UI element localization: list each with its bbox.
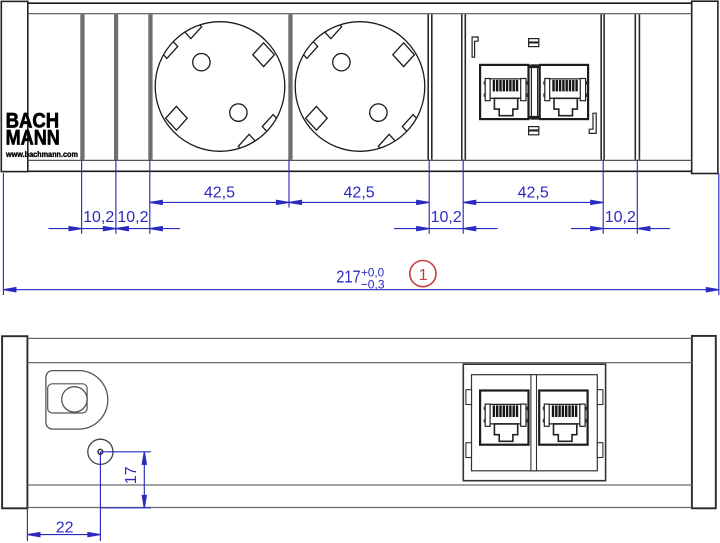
svg-text:217: 217 (336, 267, 360, 287)
svg-text:MANN: MANN (6, 125, 60, 149)
svg-text:42,5: 42,5 (204, 185, 235, 202)
svg-text:www.bachmann.com: www.bachmann.com (5, 150, 78, 159)
svg-text:−0,3: −0,3 (361, 277, 385, 291)
svg-text:10,2: 10,2 (431, 209, 462, 226)
svg-text:10,2: 10,2 (83, 209, 114, 226)
svg-text:42,5: 42,5 (518, 185, 549, 202)
svg-text:10,2: 10,2 (605, 209, 636, 226)
svg-text:10,2: 10,2 (117, 209, 148, 226)
svg-text:22: 22 (56, 519, 74, 536)
svg-text:17: 17 (123, 466, 140, 484)
svg-text:1: 1 (419, 267, 428, 284)
svg-text:42,5: 42,5 (344, 185, 375, 202)
